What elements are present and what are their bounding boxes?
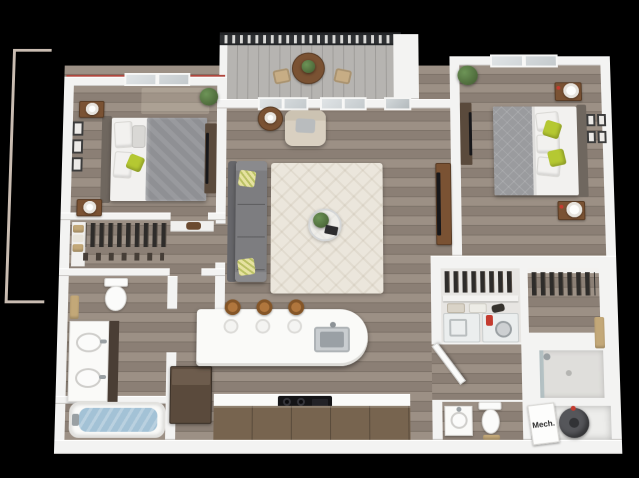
laundry-basket (469, 303, 487, 313)
closet1-shoe-row (83, 253, 164, 261)
bath1-faucet-south (99, 375, 106, 379)
mech-room-label-text: Mech. (532, 418, 556, 430)
closet1-towel-stack (72, 244, 83, 252)
bedroom1-window (124, 73, 190, 86)
closet1-bag (186, 222, 201, 230)
patio-chair-right (333, 68, 352, 85)
armchair-pillow (295, 118, 315, 133)
closet1-hanging-clothes (81, 223, 168, 247)
shower-wall-towel (594, 317, 605, 348)
water-heater-valve (571, 406, 576, 411)
neighbor-unit-outline (5, 49, 52, 303)
bedroom1-plant-icon (200, 88, 219, 106)
bedroom1-duvet (145, 118, 207, 201)
bar-stool (288, 299, 304, 315)
dryer-drum (495, 321, 512, 338)
closet-bath-divider-a (59, 268, 170, 276)
bedroom1-pillow (114, 121, 134, 149)
bedroom2-wall-frame (586, 114, 595, 126)
bedroom2-green-pillow (547, 148, 567, 167)
bedroom2-red-clock (556, 86, 560, 90)
detergent-bottle (486, 315, 493, 326)
bath2-round-sink (450, 412, 467, 429)
balcony-side-wall-right (393, 34, 419, 99)
balcony-railing (220, 32, 401, 45)
laundry-basket (447, 303, 465, 313)
refrigerator-top-panel (172, 369, 210, 385)
laundry-shelf (443, 295, 518, 301)
apartment-plan: Mech. (15, 25, 624, 464)
bathtub-faucet (72, 414, 79, 426)
closet-bath-divider-b (201, 268, 225, 276)
bedroom1-wall-frame (72, 157, 83, 171)
bar-stool (256, 299, 272, 315)
bedroom2-wall-frame (587, 131, 596, 143)
bedroom2-red-decor (559, 205, 563, 209)
bedroom2-window (490, 54, 558, 67)
closet1-towel-stack (73, 225, 84, 233)
bath1-wall-towels (70, 295, 80, 318)
bath1-east-wall-upper (167, 276, 177, 309)
sofa-throw-pillow (238, 170, 257, 188)
bar-stool (225, 299, 241, 315)
closet1-towel-stack (73, 235, 84, 243)
place-setting-plate (223, 319, 238, 334)
cooktop-burner (297, 398, 305, 406)
bedroom2-gray-quilt (493, 107, 534, 196)
bedroom2-drum-lamp-south (566, 202, 582, 217)
bedroom2-wall-frame (598, 131, 607, 143)
bath1-faucet-north (100, 340, 107, 344)
closet2-hanging-clothes (532, 272, 596, 295)
bathtub-water (79, 408, 158, 432)
bath1-vanity-cabinet-edge (108, 321, 120, 402)
island-sink-basin (320, 332, 344, 348)
bedroom1-tv (205, 133, 209, 184)
shower-drain (566, 370, 572, 376)
island-faucet (330, 322, 336, 328)
living-tv (436, 172, 441, 235)
bedroom1-gray-pillow (132, 125, 146, 148)
bedroom2-drum-lamp-north (563, 83, 579, 98)
bedroom1-wall-frame (73, 122, 84, 136)
mech-room-label: Mech. (527, 402, 560, 445)
side-table-lamp (265, 112, 277, 123)
bath2-wood-tray (483, 435, 500, 440)
balcony-glass-door (384, 97, 411, 110)
cooktop-burner (283, 398, 291, 406)
bath2-faucet (456, 407, 461, 412)
bedroom1-floor-mats (141, 88, 209, 114)
place-setting-plate (255, 319, 270, 334)
place-setting-plate (287, 319, 302, 334)
living-window-right (320, 97, 367, 110)
shower-head (543, 353, 550, 360)
bedroom2-plant-icon (457, 66, 478, 86)
laundry-hanging-clothes (445, 271, 517, 292)
bedroom2-wall-frame (597, 114, 606, 126)
washer-door (449, 319, 467, 337)
perspective-wrapper: Mech. (0, 18, 639, 478)
bedroom1-closet-divider-b (208, 212, 226, 220)
bath2-toilet-bowl (481, 409, 500, 434)
sofa-throw-pillow (237, 258, 256, 277)
water-heater-core (569, 418, 579, 428)
bedroom1-wall-frame (72, 139, 83, 153)
kitchen-lower-cabinets (213, 406, 410, 440)
bistro-table-plant-icon (302, 60, 316, 73)
floorplan-render: Mech. (0, 0, 639, 478)
